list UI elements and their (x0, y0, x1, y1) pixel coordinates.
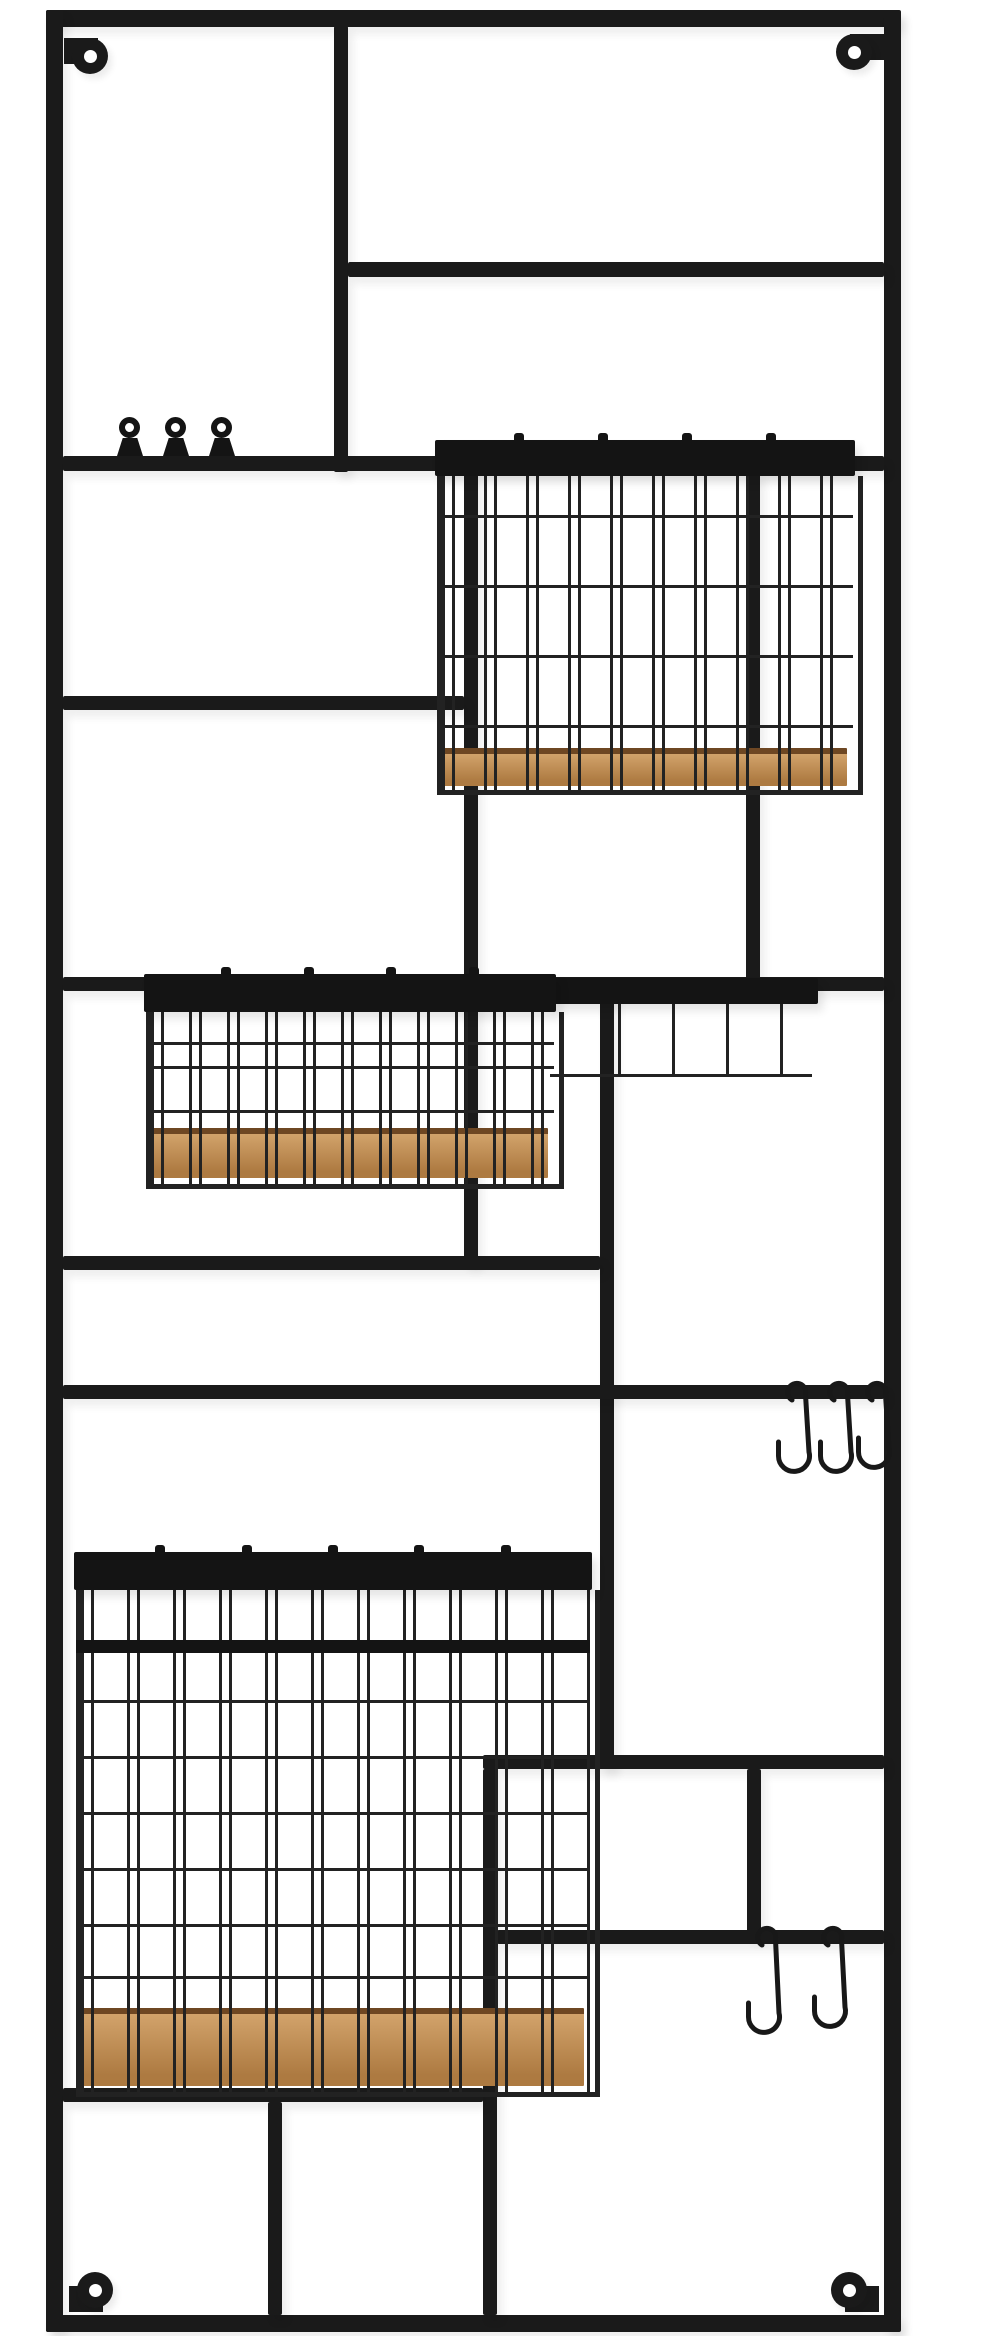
basket-lower-horizontal-wire-1 (76, 1700, 590, 1703)
basket-lower-horizontal-wire-2 (76, 1756, 590, 1759)
basket-lower-wire-mesh (76, 1590, 600, 2097)
basket-lower-horizontal-wire-4 (76, 1868, 590, 1871)
basket-middle-rail-hook-nub-1 (221, 967, 231, 975)
s-hook-upper-3-icon (852, 1378, 908, 1494)
basket-upper-rail-hook-nub-1 (514, 433, 524, 441)
mount-tab-top-right-screw-hole (848, 46, 861, 59)
frame-left-bar (46, 10, 63, 2332)
ring-clip-3 (211, 417, 232, 438)
shelf-bar-left-low (63, 1256, 600, 1270)
ring-clip-2-base (163, 438, 189, 456)
basket-middle-wire-mesh (146, 1012, 564, 1189)
shelf-bar-hooks-full (63, 1385, 884, 1399)
basket-middle-side-rail (550, 978, 818, 1004)
basket-lower-rail-hook-nub-1 (155, 1545, 165, 1553)
basket-middle-hanging-rail (144, 974, 556, 1012)
basket-lower-rail-hook-nub-2 (242, 1545, 252, 1553)
divider-v1-top-center (334, 26, 348, 472)
basket-middle-horizontal-wire-1 (146, 1042, 554, 1045)
basket-middle-side-wire-2 (672, 1000, 675, 1074)
mount-tab-bottom-right (831, 2272, 867, 2308)
basket-middle-side-wire-4 (780, 1000, 783, 1074)
s-hook-lower-1 (742, 1923, 798, 2059)
divider-v4-center-low (600, 991, 614, 1769)
mount-tab-bottom-left (77, 2272, 113, 2308)
basket-middle-side-wire-1 (618, 1000, 621, 1074)
mount-tab-bottom-left-screw-hole (89, 2284, 102, 2297)
frame-right-bar (884, 10, 901, 2332)
basket-middle-horizontal-wire-2 (146, 1066, 554, 1069)
basket-middle-rail-hook-nub-3 (386, 967, 396, 975)
mount-tab-top-left-screw-hole (84, 50, 97, 63)
basket-upper-rail-hook-nub-4 (766, 433, 776, 441)
frame-top-bar (46, 10, 900, 27)
basket-lower-rail-hook-nub-3 (328, 1545, 338, 1553)
mount-tab-top-left (72, 38, 108, 74)
wall-rack-product-photo (0, 0, 984, 2336)
basket-middle-rail-hook-nub-4 (469, 967, 479, 975)
basket-upper-horizontal-wire-3 (437, 655, 853, 658)
s-hook-lower-1-icon (742, 1923, 798, 2059)
s-hook-lower-2-icon (808, 1923, 864, 2053)
basket-lower-horizontal-wire-6 (76, 1976, 590, 1979)
basket-lower-rim-wire (76, 1640, 590, 1653)
ring-clip-3-base (209, 438, 235, 456)
basket-middle-side-wire-3 (726, 1000, 729, 1074)
basket-lower-horizontal-wire-5 (76, 1924, 590, 1927)
ring-clip-1-base (117, 438, 143, 456)
divider-v7-bottom-left (268, 2102, 282, 2315)
basket-upper-horizontal-wire-4 (437, 725, 853, 728)
basket-upper-horizontal-wire-2 (437, 585, 853, 588)
mount-tab-top-right (836, 34, 872, 70)
basket-middle-rail-hook-nub-2 (304, 967, 314, 975)
s-hook-lower-2 (808, 1923, 864, 2053)
ring-clip-1 (119, 417, 140, 438)
basket-upper-wire-mesh (437, 476, 863, 795)
basket-upper-rail-hook-nub-3 (682, 433, 692, 441)
basket-lower-rail-hook-nub-4 (414, 1545, 424, 1553)
basket-lower-hanging-rail (74, 1552, 592, 1590)
basket-upper-horizontal-wire-1 (437, 515, 853, 518)
basket-lower-horizontal-wire-3 (76, 1812, 590, 1815)
basket-middle-side-bottom-wire (550, 1074, 812, 1077)
basket-upper-rail-hook-nub-2 (598, 433, 608, 441)
basket-upper-hanging-rail (435, 440, 855, 476)
mount-tab-bottom-right-screw-hole (843, 2284, 856, 2297)
divider-v5-bottom-right (747, 1769, 761, 1937)
frame-bottom-bar (46, 2315, 900, 2332)
ring-clip-2 (165, 417, 186, 438)
shelf-bar-top-right (348, 262, 884, 277)
s-hook-upper-3 (852, 1378, 908, 1494)
basket-middle-horizontal-wire-3 (146, 1110, 554, 1113)
basket-lower-rail-hook-nub-5 (501, 1545, 511, 1553)
shelf-bar-left-mid (63, 696, 464, 710)
